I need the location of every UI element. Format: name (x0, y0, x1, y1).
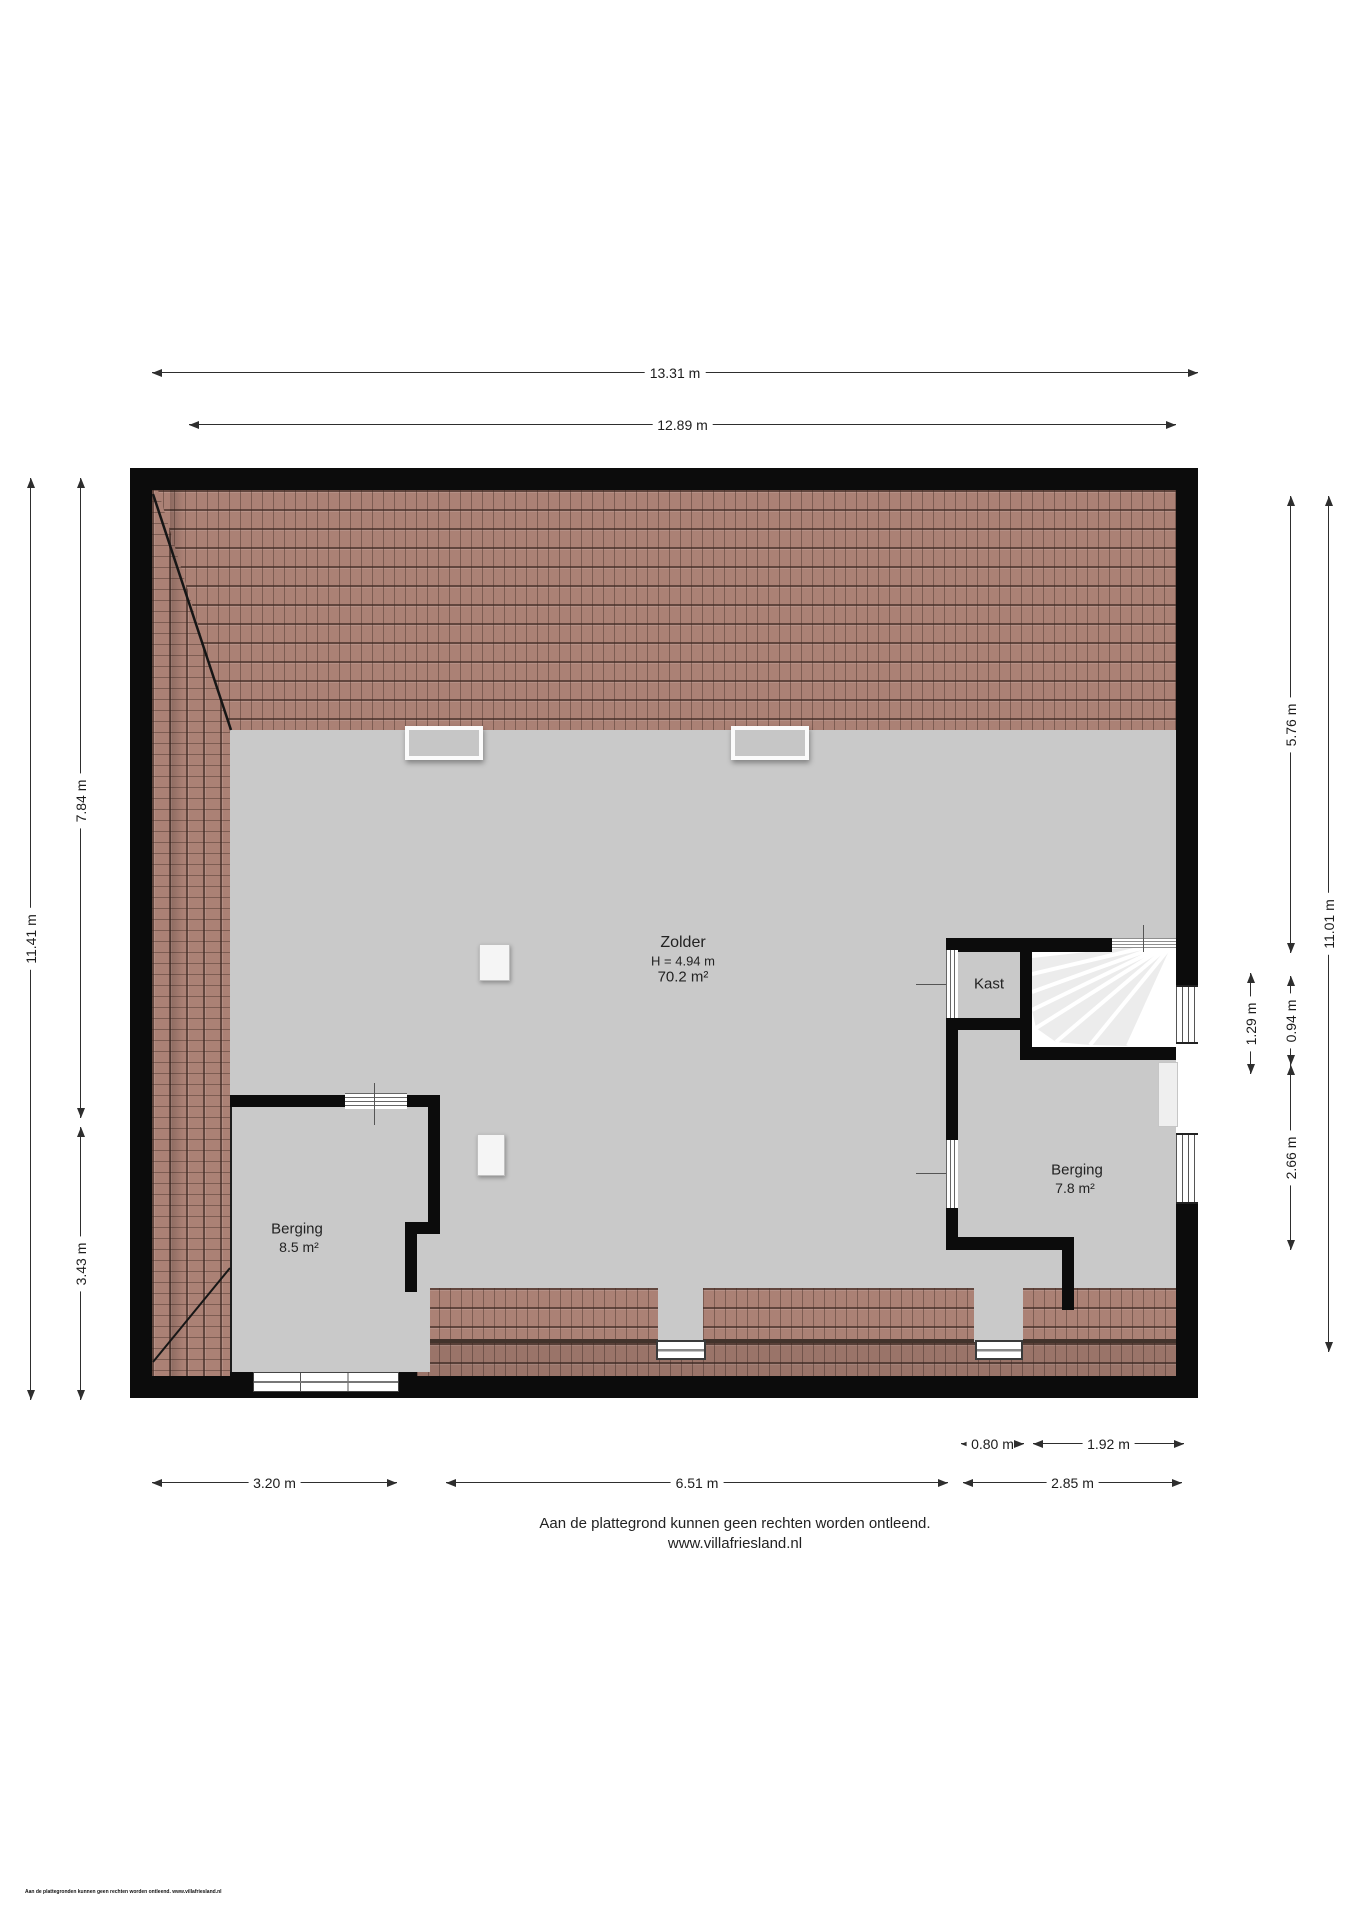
dim-left-upper: 7.84 m (80, 478, 81, 1118)
berging-left-wall-lower (405, 1234, 417, 1292)
dim-right-window: 0.94 m (1290, 976, 1291, 1065)
dim-right-stair: 1.29 m (1250, 973, 1251, 1074)
kast-door-swing-line (916, 984, 946, 985)
berging-left-right-wall (428, 1095, 440, 1234)
zolder-area-label: 70.2 m² (658, 969, 709, 986)
dim-left-outer-label: 11.41 m (23, 908, 39, 970)
skylight-left (405, 726, 483, 760)
dim-left-lower-label: 3.43 m (73, 1236, 89, 1291)
right-wall-window-lower (1176, 1133, 1198, 1204)
stairwell-bottom-wall (1020, 1047, 1177, 1060)
dim-top-outer-label: 13.31 m (645, 365, 706, 381)
berging-left-window (253, 1372, 399, 1392)
website-text: www.villafriesland.nl (668, 1535, 802, 1552)
small-print-text: Aan de plattegronden kunnen geen rechten… (25, 1889, 222, 1895)
dim-bottom-285: 2.85 m (963, 1482, 1182, 1483)
dim-left-lower: 3.43 m (80, 1127, 81, 1400)
berging-left-door-swing-line (374, 1083, 375, 1125)
dim-right-berging-label: 2.66 m (1283, 1130, 1299, 1185)
berging-right-bottom-l-wall (946, 1237, 1074, 1250)
zolder-label: Zolder (660, 934, 705, 952)
stairs-fan (1032, 948, 1176, 1047)
roof-bottom-band-lower (417, 1343, 1176, 1376)
zolder-height-label: H = 4.94 m (651, 954, 715, 969)
stairwell (1032, 948, 1176, 1047)
floorplan: Zolder H = 4.94 m 70.2 m² Kast Berging 7… (0, 0, 1358, 1920)
berging-left-area-label: 8.5 m² (279, 1239, 319, 1255)
berging-right-label: Berging (1051, 1162, 1103, 1179)
berging-right-door-swing-line (916, 1173, 946, 1174)
right-wall-opening (1176, 1040, 1198, 1133)
dim-bottom-651-label: 6.51 m (671, 1475, 724, 1491)
dim-right-stair-label: 1.29 m (1243, 996, 1259, 1051)
right-wall-window-upper (1176, 985, 1198, 1044)
dim-right-window-label: 0.94 m (1283, 993, 1299, 1048)
dormer-recess-left (658, 1288, 703, 1342)
dim-top-inner: 12.89 m (189, 424, 1176, 425)
dim-bottom-080: 0.80 m (961, 1443, 1024, 1444)
stairs-treads (1112, 938, 1176, 948)
kast-right-wall (1020, 938, 1032, 1060)
floorplan-page: { "dims": { "top": ["13.31 m", "12.89 m"… (0, 0, 1358, 1920)
dim-bottom-080-label: 0.80 m (966, 1436, 1019, 1452)
dim-right-berging: 2.66 m (1290, 1065, 1291, 1250)
dim-right-upper: 5.76 m (1290, 496, 1291, 953)
dim-bottom-651: 6.51 m (446, 1482, 948, 1483)
dim-left-upper-label: 7.84 m (73, 774, 89, 829)
stairs-entry-line (1143, 925, 1144, 952)
dim-right-total-label: 11.01 m (1321, 893, 1337, 955)
dim-right-total: 11.01 m (1328, 496, 1329, 1352)
dormer-recess-right (974, 1288, 1023, 1342)
dim-bottom-320-label: 3.20 m (248, 1475, 301, 1491)
chimney-upper (479, 944, 510, 981)
dormer-window-right (975, 1340, 1023, 1360)
dim-top-outer: 13.31 m (152, 372, 1198, 373)
berging-right-door (946, 1140, 958, 1208)
berging-left-label: Berging (271, 1221, 323, 1238)
roof-left-fold-shade (170, 490, 184, 1376)
dim-bottom-285-label: 2.85 m (1046, 1475, 1099, 1491)
berging-left-door (345, 1093, 407, 1109)
dim-left-outer: 11.41 m (30, 478, 31, 1400)
dim-bottom-192: 1.92 m (1033, 1443, 1184, 1444)
berging-right-area-label: 7.8 m² (1055, 1180, 1095, 1196)
roof-top-band (152, 490, 1176, 731)
berging-left-top-wall (230, 1095, 440, 1107)
chimney-lower (477, 1134, 505, 1176)
berging-right-left-wall-upper (946, 1030, 958, 1140)
berging-left-floor (230, 1107, 430, 1372)
disclaimer-text: Aan de plattegrond kunnen geen rechten w… (539, 1515, 930, 1532)
open-door-leaf (1158, 1062, 1178, 1127)
skylight-right (731, 726, 809, 760)
kast-label: Kast (974, 976, 1004, 993)
dim-bottom-320: 3.20 m (152, 1482, 397, 1483)
dormer-window-left (656, 1340, 706, 1360)
dim-right-upper-label: 5.76 m (1283, 697, 1299, 752)
dim-bottom-192-label: 1.92 m (1082, 1436, 1135, 1452)
berging-right-wall-stub (1062, 1250, 1074, 1310)
dim-top-inner-label: 12.89 m (652, 417, 713, 433)
berging-left-wall-jog (405, 1222, 440, 1234)
kast-door (946, 950, 958, 1018)
